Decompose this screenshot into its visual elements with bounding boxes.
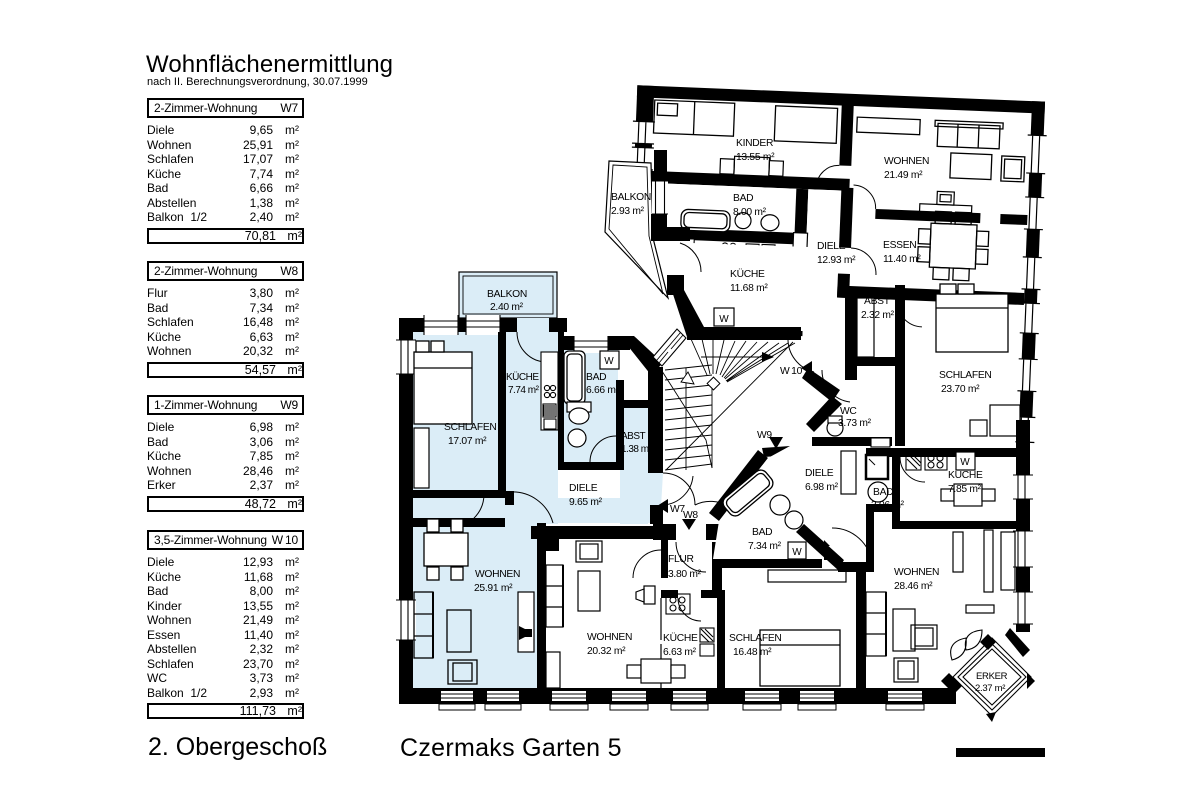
svg-text:WOHNEN: WOHNEN (587, 632, 632, 643)
svg-text:2.40 m²: 2.40 m² (490, 302, 524, 313)
svg-text:W9: W9 (757, 430, 772, 441)
svg-text:6.63 m²: 6.63 m² (663, 647, 697, 658)
svg-text:W 10: W 10 (780, 366, 803, 377)
svg-text:SCHLAFEN: SCHLAFEN (939, 370, 992, 381)
svg-text:1.38 m²: 1.38 m² (621, 444, 653, 455)
svg-text:2.93 m²: 2.93 m² (611, 206, 645, 217)
svg-text:9.65 m²: 9.65 m² (569, 497, 603, 508)
svg-text:DIELE: DIELE (569, 483, 598, 494)
svg-text:12.93 m²: 12.93 m² (817, 255, 856, 266)
svg-text:ERKER: ERKER (976, 671, 1008, 682)
svg-text:3.73 m²: 3.73 m² (838, 418, 872, 429)
svg-text:20.32 m²: 20.32 m² (587, 646, 626, 657)
svg-text:KÜCHE: KÜCHE (663, 632, 698, 644)
svg-text:13.55 m²: 13.55 m² (736, 152, 775, 163)
svg-text:11.68 m²: 11.68 m² (730, 283, 768, 294)
svg-text:FLUR: FLUR (668, 554, 694, 565)
svg-text:16.48 m²: 16.48 m² (733, 647, 772, 658)
svg-text:6.66 m²: 6.66 m² (586, 385, 620, 396)
svg-text:BAD: BAD (873, 487, 893, 498)
svg-text:8.00 m²: 8.00 m² (733, 207, 767, 218)
svg-text:SCHLAFEN: SCHLAFEN (444, 422, 497, 433)
svg-text:WOHNEN: WOHNEN (894, 567, 939, 578)
svg-text:ESSEN: ESSEN (883, 240, 916, 251)
svg-text:2.32 m²: 2.32 m² (861, 310, 895, 321)
svg-text:ABST: ABST (864, 296, 891, 307)
svg-text:7.85 m²: 7.85 m² (948, 484, 982, 495)
svg-text:3.80 m²: 3.80 m² (668, 569, 702, 580)
svg-text:WOHNEN: WOHNEN (475, 569, 520, 580)
svg-text:W: W (719, 314, 729, 325)
svg-text:3.06 m²: 3.06 m² (871, 500, 905, 511)
svg-text:21.49 m²: 21.49 m² (884, 170, 923, 181)
svg-text:ABST: ABST (621, 431, 646, 442)
svg-text:BALKON: BALKON (611, 192, 651, 203)
svg-text:7.34 m²: 7.34 m² (748, 541, 782, 552)
svg-text:SCHLAFEN: SCHLAFEN (729, 633, 782, 644)
svg-text:23.70 m²: 23.70 m² (941, 384, 980, 395)
svg-text:DIELE: DIELE (805, 468, 834, 479)
svg-text:25.91 m²: 25.91 m² (474, 583, 513, 594)
svg-text:28.46 m²: 28.46 m² (894, 581, 933, 592)
svg-text:BALKON: BALKON (487, 289, 527, 300)
svg-text:W: W (792, 547, 802, 558)
svg-text:KÜCHE: KÜCHE (730, 268, 765, 280)
svg-text:2.37 m²: 2.37 m² (975, 683, 1005, 694)
svg-text:6.98 m²: 6.98 m² (805, 482, 839, 493)
svg-text:7.74 m²: 7.74 m² (508, 385, 540, 396)
svg-text:KÜCHE: KÜCHE (948, 469, 983, 481)
svg-text:KÜCHE: KÜCHE (506, 371, 539, 383)
svg-text:WC: WC (840, 406, 857, 417)
svg-text:WOHNEN: WOHNEN (884, 156, 929, 167)
svg-text:W: W (960, 457, 970, 468)
svg-text:W: W (604, 356, 614, 367)
svg-text:11.40 m²: 11.40 m² (883, 254, 921, 265)
svg-text:BAD: BAD (586, 372, 606, 383)
svg-text:17.07 m²: 17.07 m² (448, 436, 487, 447)
svg-text:DIELE: DIELE (817, 241, 846, 252)
svg-text:KINDER: KINDER (736, 138, 773, 149)
svg-text:BAD: BAD (752, 527, 772, 538)
svg-text:BAD: BAD (733, 193, 753, 204)
